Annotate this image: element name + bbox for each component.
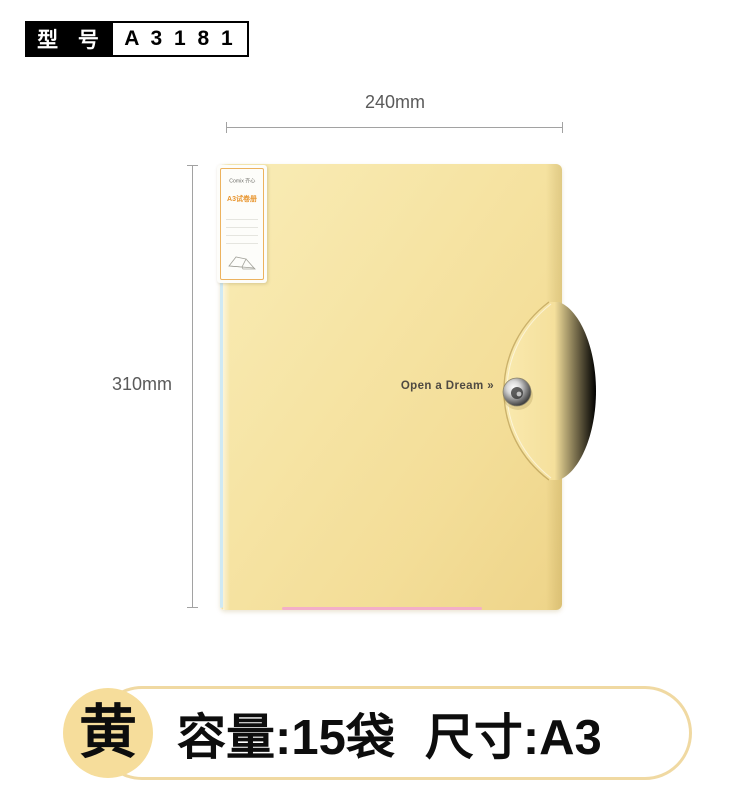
- label-ruled-lines: [221, 212, 263, 244]
- label-title-text: A3试卷册: [227, 194, 257, 204]
- height-dimension-label: 310mm: [104, 374, 180, 395]
- color-badge: 黄: [63, 688, 153, 778]
- height-dimension-line: [192, 165, 193, 608]
- spec-text: 容量:15袋 尺寸:A3: [177, 686, 602, 780]
- brand-text: Comix 齐心: [229, 177, 255, 185]
- width-dimension-label: 240mm: [227, 92, 563, 113]
- inner-pocket-pink-edge: [282, 607, 482, 610]
- cover-slogan: Open a Dream »: [401, 380, 494, 392]
- model-badge-label: 型 号: [25, 21, 111, 57]
- spec-banner: 黄 容量:15袋 尺寸:A3: [63, 686, 703, 781]
- size-text: 尺寸:A3: [425, 698, 602, 769]
- snap-button-glint: [517, 392, 522, 397]
- width-dimension-line: [226, 127, 563, 128]
- folder-product: Comix 齐心 A3试卷册 Open a Dream »: [220, 164, 562, 610]
- spine-label: Comix 齐心 A3试卷册: [217, 165, 267, 283]
- spine-label-frame: Comix 齐心 A3试卷册: [220, 168, 264, 280]
- capacity-text: 容量:15袋: [177, 698, 395, 769]
- model-badge: 型 号 A 3 1 8 1: [25, 21, 249, 57]
- closure-flap: [497, 295, 597, 487]
- model-badge-value: A 3 1 8 1: [111, 21, 249, 57]
- folder-sketch-icon: [226, 253, 258, 273]
